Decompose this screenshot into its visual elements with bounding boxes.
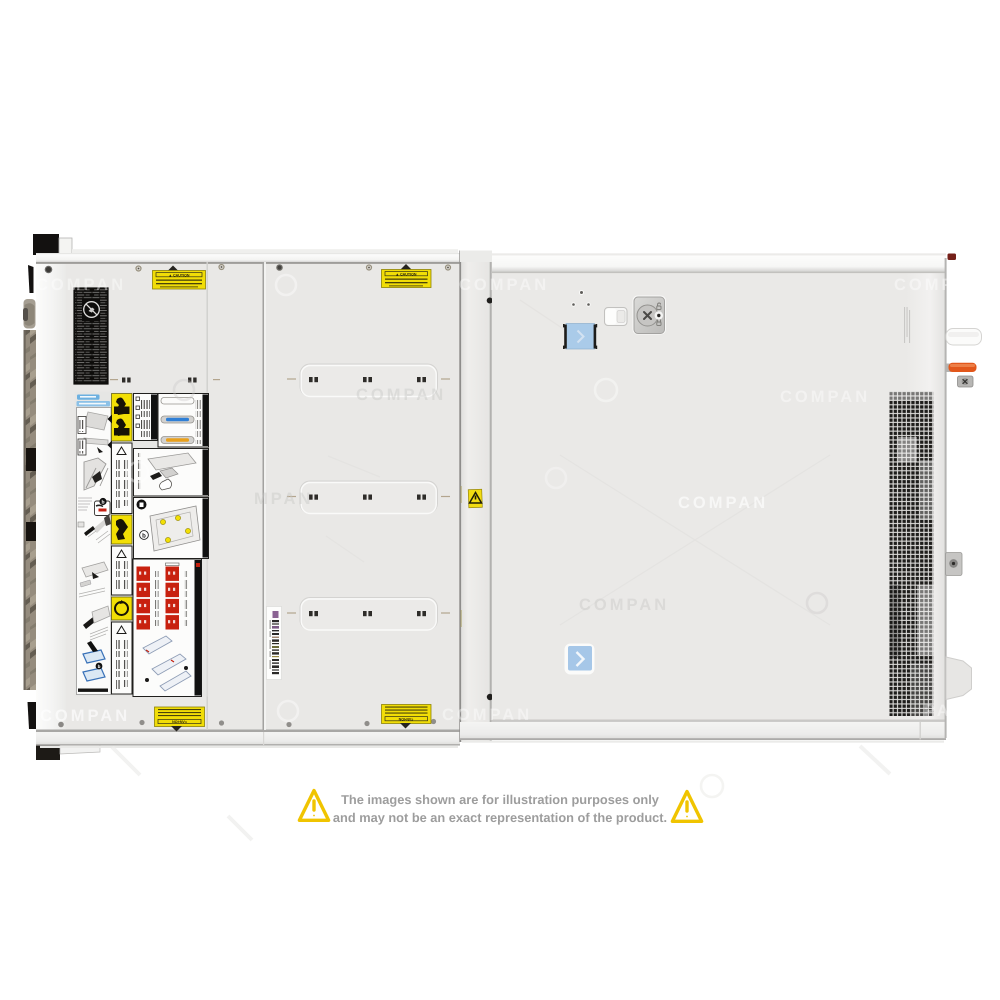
svg-text:MPAN: MPAN: [254, 490, 313, 508]
svg-text:The images shown are for illus: The images shown are for illustration pu…: [341, 792, 660, 807]
svg-text:COMPAN: COMPAN: [894, 276, 984, 294]
svg-text:COMPAN: COMPAN: [678, 494, 768, 512]
svg-text:COMPAN: COMPAN: [356, 386, 446, 404]
svg-text:COMPAN: COMPAN: [579, 596, 669, 614]
svg-text:COMPAN: COMPAN: [780, 388, 870, 406]
svg-text:NOI•NVɔ: NOI•NVɔ: [399, 717, 414, 721]
svg-text:b: b: [142, 532, 146, 539]
svg-text:COMPAN: COMPAN: [40, 707, 130, 725]
svg-text:▲ CAUTION: ▲ CAUTION: [396, 272, 417, 276]
svg-text:COMPAN: COMPAN: [442, 706, 532, 724]
svg-text:COMPAN: COMPAN: [459, 276, 549, 294]
svg-text:b: b: [101, 499, 104, 505]
svg-text:NOI•NVɔ: NOI•NVɔ: [172, 720, 187, 724]
svg-text:b: b: [98, 664, 101, 669]
svg-text:and may not be an exact repres: and may not be an exact representation o…: [333, 810, 667, 825]
svg-text:▲ CAUTION: ▲ CAUTION: [169, 273, 190, 277]
svg-text:PAN: PAN: [924, 702, 967, 720]
svg-text:COMPAN: COMPAN: [36, 276, 126, 294]
